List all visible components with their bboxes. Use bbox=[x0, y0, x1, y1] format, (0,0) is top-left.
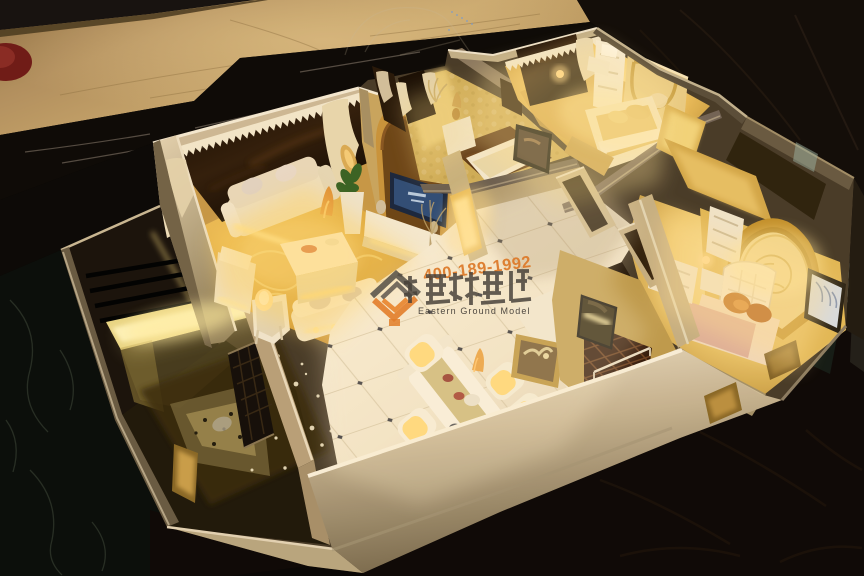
svg-text:Eastern Ground Model: Eastern Ground Model bbox=[418, 306, 531, 316]
